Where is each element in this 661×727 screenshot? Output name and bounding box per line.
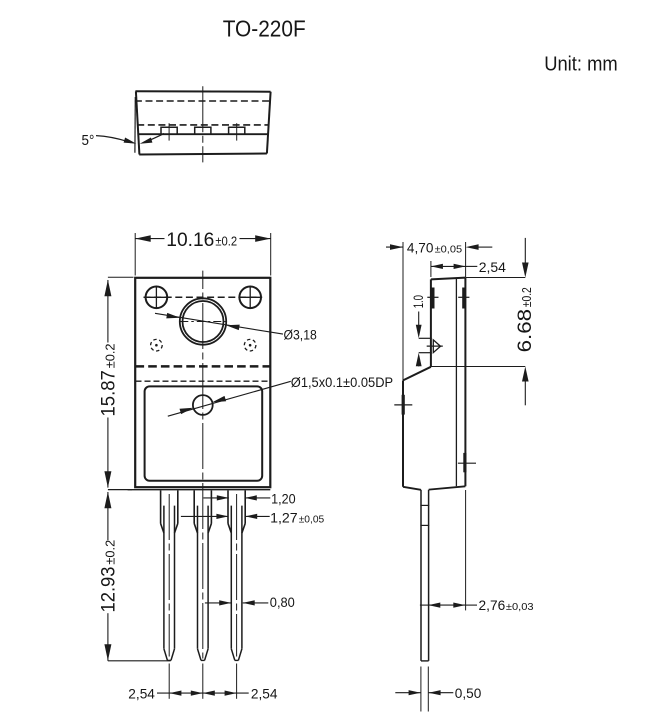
svg-text:Ø3,18: Ø3,18 (284, 328, 317, 343)
svg-text:4,70: 4,70 (407, 239, 434, 255)
svg-text:±0.2: ±0.2 (520, 287, 534, 307)
svg-text:±0,05: ±0,05 (299, 514, 325, 526)
svg-text:1.0: 1.0 (410, 295, 426, 308)
svg-text:±0,03: ±0,03 (506, 601, 534, 613)
svg-text:±0.2: ±0.2 (103, 540, 117, 565)
svg-text:TO-220F: TO-220F (223, 16, 306, 42)
svg-text:2,54: 2,54 (251, 686, 278, 702)
svg-text:2,76: 2,76 (479, 597, 506, 613)
svg-text:2,54: 2,54 (479, 259, 506, 275)
svg-text:±0.2: ±0.2 (103, 343, 117, 368)
svg-text:12.93: 12.93 (99, 567, 120, 613)
svg-text:2,54: 2,54 (128, 686, 155, 702)
svg-text:5°: 5° (82, 132, 95, 149)
svg-text:10.16: 10.16 (166, 230, 214, 251)
svg-text:0,50: 0,50 (455, 685, 482, 701)
svg-text:0,80: 0,80 (270, 594, 295, 610)
svg-text:Ø1,5x0.1±0.05DP: Ø1,5x0.1±0.05DP (291, 375, 393, 390)
svg-text:15.87: 15.87 (99, 370, 120, 416)
svg-text:1,20: 1,20 (271, 490, 296, 506)
svg-text:6.68: 6.68 (515, 309, 536, 353)
svg-text:±0,05: ±0,05 (435, 243, 463, 255)
svg-text:±0.2: ±0.2 (215, 235, 237, 249)
svg-text:1,27: 1,27 (270, 510, 298, 526)
svg-text:Unit: mm: Unit: mm (544, 52, 618, 75)
